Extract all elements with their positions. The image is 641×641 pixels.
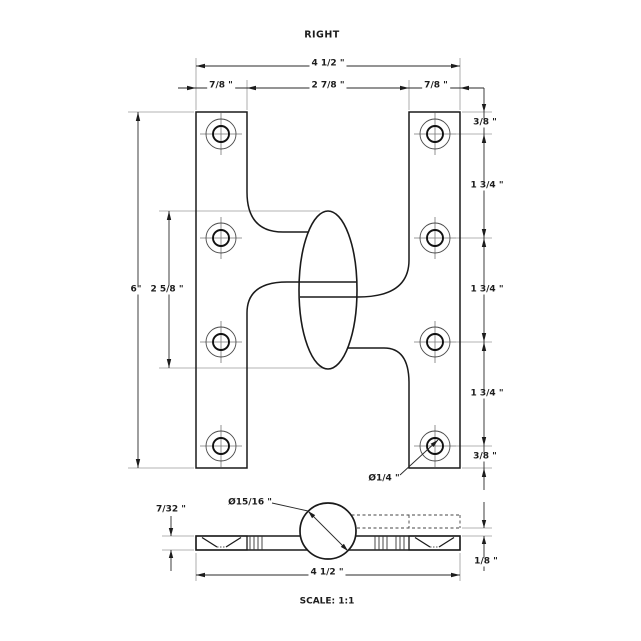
dim-leaf-thickness: 7/32 ": [156, 506, 186, 515]
countersink-left: [196, 536, 247, 550]
dim-overall-height: 6": [129, 286, 144, 295]
drawing-title: RIGHT: [304, 30, 340, 40]
countersink-right: [409, 536, 460, 550]
screw-hole: [200, 113, 242, 155]
dim-knuckle-length: 2 5/8 ": [148, 286, 185, 295]
screw-hole: [414, 217, 456, 259]
front-view: [196, 112, 460, 468]
right-leaf-outline: [300, 112, 460, 468]
dim-bottom-margin: 3/8 ": [471, 453, 499, 462]
dim-hole-spacing-1: 1 3/4 ": [468, 182, 505, 191]
dim-right-leaf-width: 7/8 ": [422, 82, 450, 91]
screw-hole: [414, 113, 456, 155]
left-leaf-outline: [196, 112, 357, 468]
screw-holes: [200, 113, 456, 467]
dim-leaf-offset: 1/8 ": [472, 558, 500, 567]
screw-hole: [414, 321, 456, 363]
extension-lines: [128, 58, 492, 581]
knuckle-ellipse: [299, 211, 357, 369]
dim-knuckle-diameter: Ø15/16 ": [228, 499, 272, 508]
scale-note: SCALE: 1:1: [300, 598, 355, 607]
dim-hole-spacing-2: 1 3/4 ": [468, 286, 505, 295]
dim-hole-spacing-3: 1 3/4 ": [468, 390, 505, 399]
dim-top-overall-width: 4 1/2 ": [309, 60, 346, 69]
screw-hole: [200, 321, 242, 363]
dim-center-span: 2 7/8 ": [309, 82, 346, 91]
drawing-sheet: RIGHT 4 1/2 " 7/8 " 2 7/8 " 7/8 " 6" 2 5…: [0, 0, 641, 641]
dim-hole-diameter: Ø1/4 ": [368, 475, 399, 484]
arrowheads: [136, 64, 486, 577]
dim-left-leaf-width: 7/8 ": [207, 82, 235, 91]
screw-hole: [200, 425, 242, 467]
hinge-drawing-canvas: [0, 0, 641, 641]
dim-top-margin: 3/8 ": [471, 119, 499, 128]
screw-hole: [414, 425, 456, 467]
knuckle-diameter-leader: [272, 503, 308, 511]
screw-hole: [200, 217, 242, 259]
dim-bottom-overall-width: 4 1/2 ": [308, 569, 345, 578]
